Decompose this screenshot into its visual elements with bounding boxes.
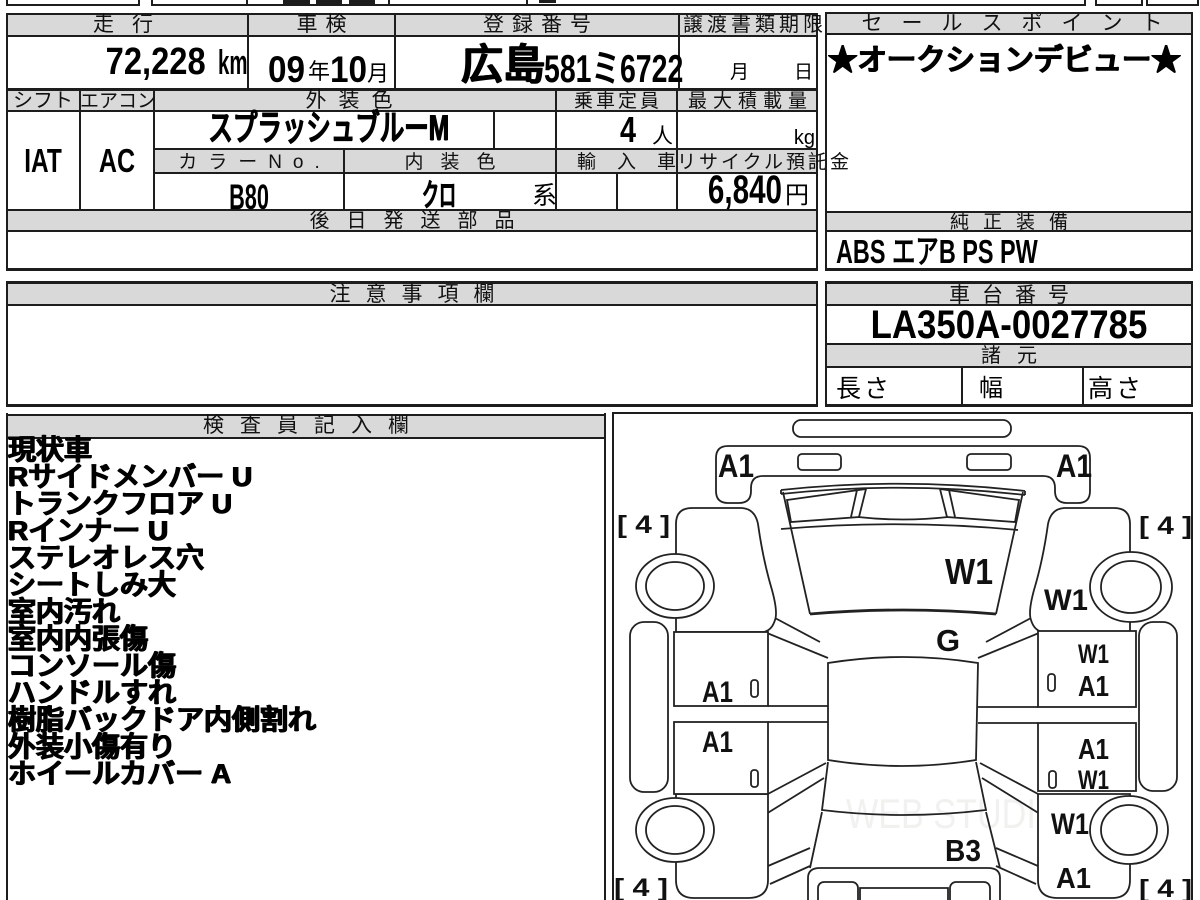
svg-text:A1: A1 <box>702 726 733 759</box>
svg-text:W1: W1 <box>945 551 993 592</box>
svg-text:[ 4 ]: [ 4 ] <box>1139 875 1191 900</box>
svg-text:W1: W1 <box>1051 808 1089 841</box>
svg-text:A1: A1 <box>1078 671 1109 703</box>
svg-text:W1: W1 <box>1078 765 1109 795</box>
svg-text:A1: A1 <box>718 448 754 484</box>
svg-text:A1: A1 <box>1078 734 1109 766</box>
svg-text:[ 4 ]: [ 4 ] <box>617 511 670 539</box>
svg-text:B3: B3 <box>945 833 981 868</box>
svg-text:W1: W1 <box>1044 584 1088 617</box>
svg-text:A1: A1 <box>1056 863 1091 895</box>
svg-text:G: G <box>936 623 960 658</box>
svg-text:A1: A1 <box>1056 448 1092 484</box>
svg-text:[ 4 ]: [ 4 ] <box>614 874 668 900</box>
svg-text:A1: A1 <box>702 676 733 709</box>
svg-text:W1: W1 <box>1078 639 1109 669</box>
svg-text:[ 4 ]: [ 4 ] <box>1139 512 1191 540</box>
